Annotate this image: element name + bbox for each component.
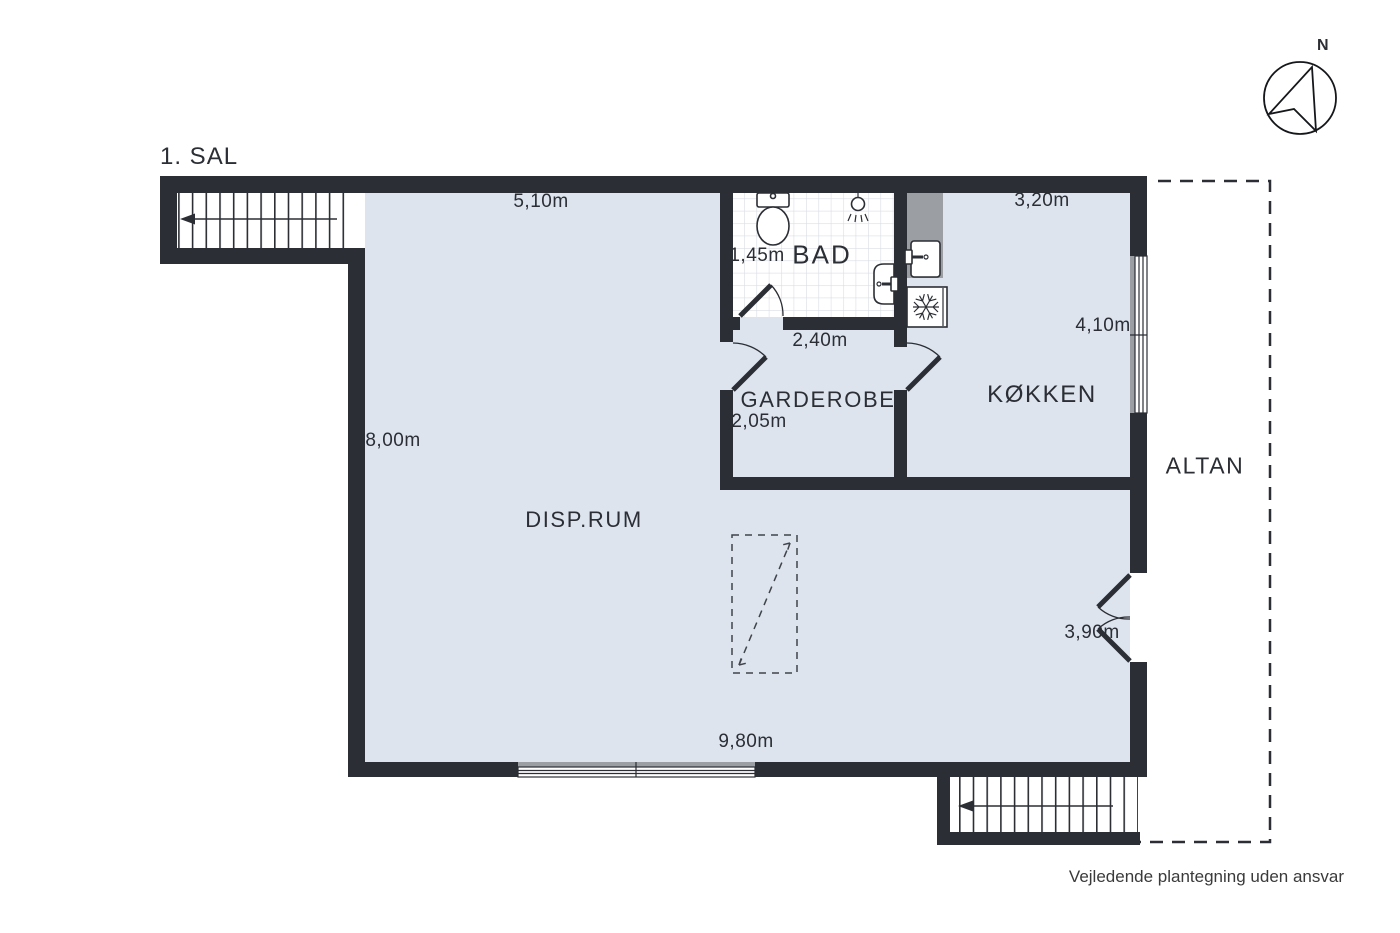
room-label-garderobe: GARDEROBE <box>741 387 896 413</box>
floor-plan-page: 1. SAL N DISP.RUM GARDEROBE BAD KØKKEN A… <box>0 0 1400 933</box>
compass-north-label: N <box>1317 37 1329 55</box>
measurement-disprum-top: 5,10m <box>513 191 568 213</box>
measurement-bad-width: 1,45m <box>729 245 784 267</box>
room-label-bad: BAD <box>792 240 851 271</box>
disclaimer-text: Vejledende plantegning uden ansvar <box>1069 867 1344 887</box>
room-label-altan: ALTAN <box>1166 453 1245 480</box>
stairs-upper <box>177 193 348 248</box>
window-east <box>1130 256 1147 413</box>
washbasin-icon <box>874 264 898 304</box>
measurement-garderobe-width: 2,05m <box>731 411 786 433</box>
page-title: 1. SAL <box>160 143 238 171</box>
measurement-disprum-bottom: 9,80m <box>718 731 773 753</box>
measurement-balcony-door: 3,90m <box>1064 622 1119 644</box>
measurement-kokken-right: 4,10m <box>1075 315 1130 337</box>
room-label-disprum: DISP.RUM <box>525 507 643 533</box>
freezer-icon <box>907 287 947 327</box>
measurement-garderobe-top: 2,40m <box>792 330 847 352</box>
compass-icon <box>1264 62 1336 134</box>
kitchen-sink-icon <box>905 241 940 277</box>
measurement-disprum-left: 8,00m <box>365 430 420 452</box>
stairs-lower <box>950 777 1138 832</box>
toilet-icon <box>757 193 789 245</box>
room-label-kokken: KØKKEN <box>987 381 1097 409</box>
balcony-boundary <box>1140 181 1270 842</box>
measurement-kokken-top: 3,20m <box>1014 190 1069 212</box>
window-south <box>518 762 755 777</box>
